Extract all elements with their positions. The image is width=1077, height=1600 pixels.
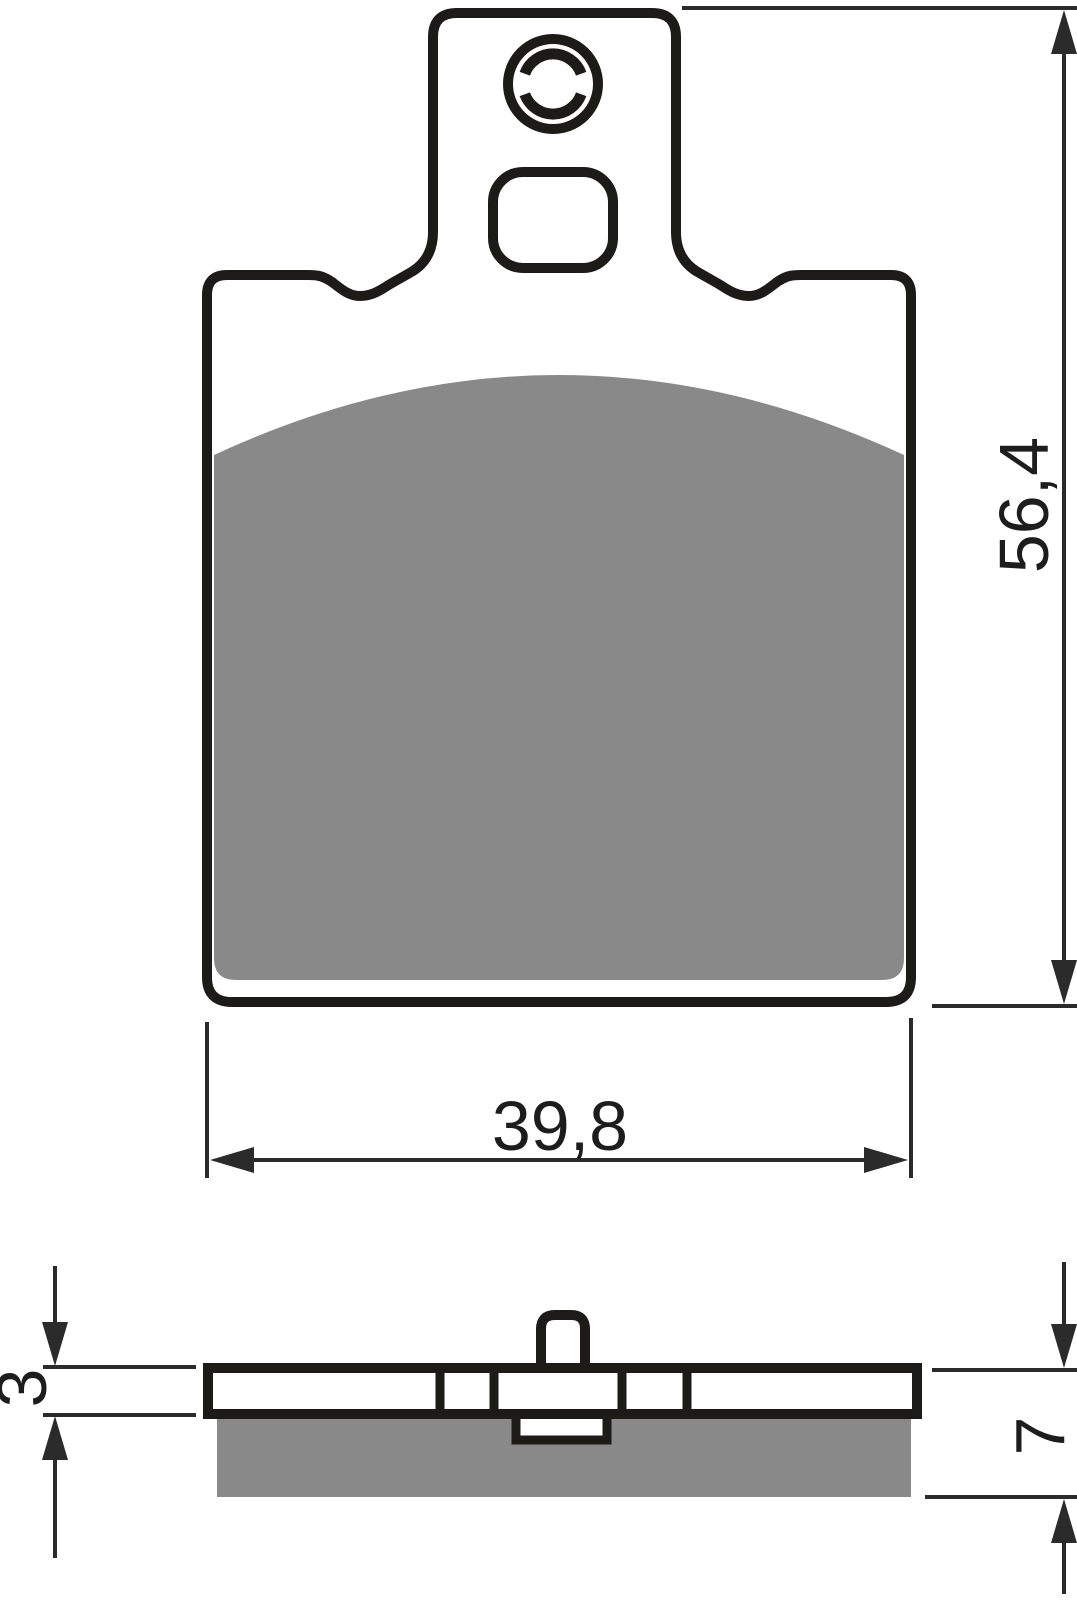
front-view — [207, 13, 911, 1002]
backplate-thickness-dimension: 3 — [0, 1266, 196, 1558]
height-arrow-up — [1051, 10, 1077, 54]
total-thickness-dimension: 7 — [925, 1262, 1077, 1594]
drawing-canvas: 56,4 39,8 3 7 — [0, 0, 1077, 1600]
width-arrow-right — [864, 1147, 908, 1173]
friction-material-front — [214, 375, 904, 980]
width-dimension: 39,8 — [207, 1018, 911, 1178]
side-view — [208, 1315, 917, 1497]
backplate-side — [208, 1368, 917, 1414]
height-dimension-label: 56,4 — [985, 437, 1063, 573]
thickness7-arrow-down — [1051, 1324, 1077, 1368]
thickness7-label: 7 — [1001, 1417, 1077, 1456]
square-hole — [493, 172, 613, 268]
brake-pad-technical-drawing: 56,4 39,8 3 7 — [0, 0, 1077, 1600]
thickness3-arrow-up — [42, 1416, 68, 1460]
thickness3-label: 3 — [0, 1369, 61, 1408]
height-arrow-down — [1051, 960, 1077, 1004]
width-dimension-label: 39,8 — [492, 1087, 628, 1165]
width-arrow-left — [210, 1147, 254, 1173]
thickness7-arrow-up — [1051, 1499, 1077, 1543]
thickness3-arrow-down — [42, 1322, 68, 1366]
